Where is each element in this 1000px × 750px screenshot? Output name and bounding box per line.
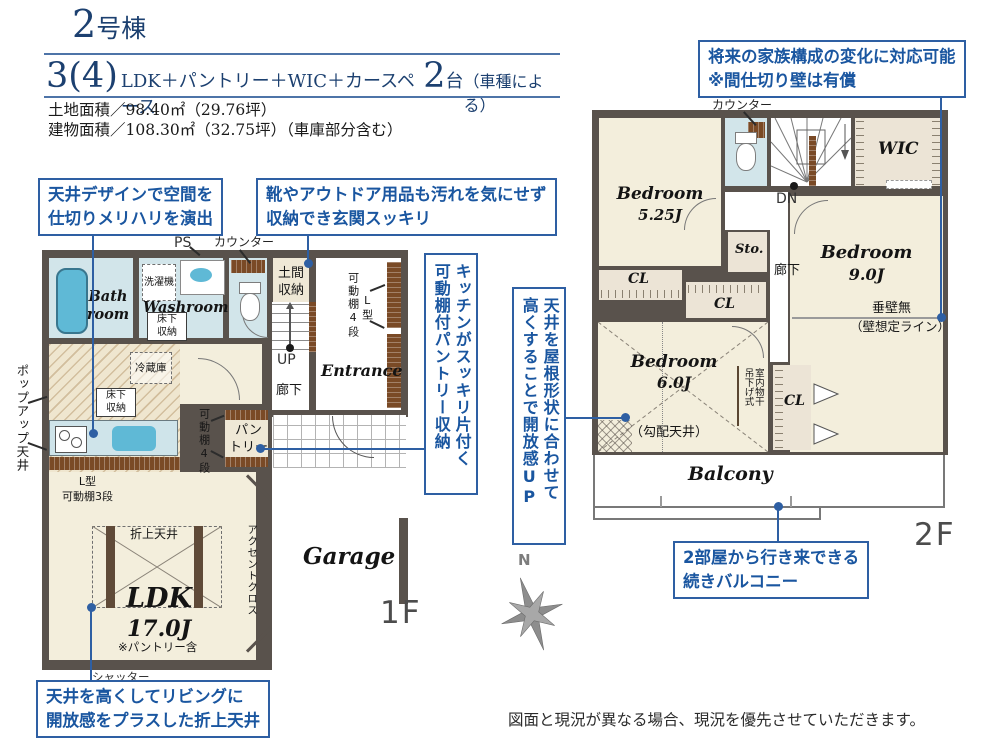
f2-closet2-hatch [688,285,764,293]
f1-doma-label-2: 収納 [278,283,304,298]
f1-pantry-label-1: パン [235,423,262,438]
f2-balcony-extension [593,508,821,520]
f1-entrance-ltype-label: L型 [360,294,373,322]
f2-drying-pole-label: 室内物干 吊下げ式 [742,368,763,430]
compass-rose-icon [494,562,570,658]
f1-bathroom-label-1: Bath [89,288,128,305]
car-unit: 台 [446,67,464,93]
callout-future-line2: ※間仕切り壁は有償 [708,71,856,90]
f1-underfloor-washroom-1: 床下 [157,314,177,325]
f1-washer-label: 洗濯機 [144,277,174,289]
connector-dot-bed6 [621,413,630,422]
f2-bedroom9-label: Bedroom 9.0J [790,242,943,285]
callout-oriage-line2: 開放感をプラスした折上天井 [46,711,260,730]
f2-tarekabe-note: （壁想定ライン） [850,320,950,334]
f2-closet3-hatch [775,367,783,448]
f2-toilet-bowl [736,143,756,171]
f1-entrance-shelf-label: 可動棚4段 [346,272,359,336]
callout-balcony-line2: 続きバルコニー [683,572,798,591]
callout-genkan-line2: 収納でき玄関スッキリ [266,209,431,228]
f2-drying-pole-line [737,366,739,426]
f1-counter-shelf [49,457,180,470]
connector-dot-balcony [774,502,783,511]
callout-ceiling-design-line2: 仕切りメリハリを演出 [48,209,213,228]
callout-balcony-line1: 2部屋から行き来できる [683,548,859,567]
f2-dn-label: DN [776,191,797,207]
callout-pantry: キッチンがスッキリ片付く 可動棚付パントリー収納 [424,253,478,495]
plan-rooms-number: 3(4) [46,56,118,96]
f2-balcony-divider-1 [660,496,662,507]
f1-stair-rail [309,302,316,352]
connector-pantry [261,448,424,450]
f2-wic-opening [886,180,932,189]
f1-toilet-bowl [240,293,260,321]
connector-ceiling-design [92,230,94,432]
f2-closet2-label: CL [714,297,735,312]
callout-slope-line2: 高くすることで開放感UP [520,297,539,507]
f2-drying-pole-label-2: 吊下げ式 [742,368,753,406]
connector-balcony [777,508,779,541]
callout-future-family: 将来の家族構成の変化に対応可能 ※間仕切り壁は有償 [698,40,966,98]
f2-floor-label: 2F [914,518,956,554]
f2-balcony-divider-2 [790,496,792,507]
f1-doma-label: 土間 収納 [278,266,304,300]
f2-dn-dot [790,182,798,190]
f1-garage-wall-bar [399,518,408,604]
car-count: 2 [423,56,445,96]
f1-up-dot [286,344,294,352]
f1-stairs-up-arrow [289,308,291,346]
callout-ceiling-design: 天井デザインで空間を 仕切りメリハリを演出 [38,178,223,236]
callout-slope-ceiling: 天井を屋根形状に合わせて 高くすることで開放感UP [512,287,566,545]
f1-pantry-shelf-top [225,410,268,420]
f2-closet1-hatch [601,290,680,298]
callout-pantry-line2: 可動棚付パントリー収納 [432,263,451,450]
f1-stairs-up-arrowhead [286,302,294,309]
f1-ldk-label: LDK 17.0J [84,582,234,643]
f1-oriage-label: 折上天井 [128,528,180,542]
connector-dot-pantry [256,444,265,453]
f2-bedroom525-size: 5.25J [638,206,682,224]
callout-future-line1: 将来の家族構成の変化に対応可能 [708,47,956,66]
building-area: 建物面積／108.30㎡（32.75坪）（車庫部分含む） [48,122,402,140]
f1-ps-label: PS [174,235,191,251]
f2-closet3-fold-doors [812,380,844,452]
callout-genkan-line1: 靴やアウトドア用品も汚れを気にせず [266,185,547,204]
f1-up-label: UP [277,352,296,368]
f1-underfloor-washroom-2: 収納 [157,327,177,338]
f2-closet3-label: CL [784,394,805,409]
f1-garage-label: Garage [303,544,395,569]
header-rule-top [44,53,560,55]
f1-ldk-size: 17.0J [127,616,191,642]
f2-stair-rail [809,136,816,186]
f2-bedroom525-label: Bedroom 5.25J [599,184,721,225]
callout-genkan-storage: 靴やアウトドア用品も汚れを気にせず 収納でき玄関スッキリ [256,178,557,236]
building-number: 2 [72,2,96,46]
f1-kitchen-sink [112,426,156,451]
callout-balcony: 2部屋から行き来できる 続きバルコニー [673,541,869,599]
connector-future [940,92,942,318]
f2-wic-label: WIC [878,140,919,159]
f1-ldk-name: LDK [126,583,192,614]
f1-underfloor-kitchen-1: 床下 [106,390,126,401]
f1-underfloor-kitchen: 床下 収納 [96,388,136,417]
callout-oriage-ceiling: 天井を高くしてリビングに 開放感をプラスした折上天井 [36,680,270,738]
f1-stove-burner-2 [71,437,82,448]
callout-ceiling-design-line1: 天井デザインで空間を [48,185,213,204]
connector-slope [562,417,626,419]
f1-lshelf-label-1: L型 [79,475,96,488]
f2-bedroom6-crosshatch [598,420,632,452]
f1-hall-label: 廊下 [276,384,302,399]
f1-entrance-shelf-upper [387,262,401,328]
f1-vanity-bowl [190,268,212,282]
f2-closet1-label: CL [628,272,649,287]
f1-lshelf-label-2: 可動棚3段 [62,490,113,503]
f2-balcony-label: Balcony [688,464,773,485]
f2-drying-pole-label-1: 室内物干 [753,368,764,406]
f2-wic-hanger-right [932,119,940,185]
f1-underfloor-washroom: 床下 収納 [147,312,187,341]
f1-fridge-label: 冷蔵庫 [135,362,167,374]
building-suffix: 号棟 [96,14,146,43]
connector-dot-doma [304,259,313,268]
f2-wic-hanger-left [856,119,864,185]
callout-pantry-line1: キッチンがスッキリ片付く [453,263,472,467]
header-rule-bottom [44,96,560,98]
f2-bedroom6-name: Bedroom [631,352,718,372]
building-title: 2号棟 [72,2,146,46]
f1-ldk-note: ※パントリー含 [118,641,197,654]
f1-accent-cloth-label: アクセントクロス [246,524,258,620]
f1-popup-ceiling-label: ポップアップ天井 [14,364,28,480]
f1-doma-label-1: 土間 [278,266,304,281]
f2-bedroom9-name: Bedroom [821,242,913,263]
f1-floor-label: 1F [380,596,422,632]
f2-bedroom6-size: 6.0J [657,373,691,392]
land-area: 土地面積／98.40㎡（29.76坪） [48,102,276,120]
callout-slope-line1: 天井を屋根形状に合わせて [541,297,560,501]
car-note: （車種による） [464,68,566,116]
f2-bedroom525-name: Bedroom [617,184,704,204]
f1-entrance-label: Entrance [321,362,403,380]
f1-pantry-shelf4-label: 可動棚4段 [197,408,210,466]
disclaimer-note: 図面と現況が異なる場合、現況を優先させていただきます。 [508,712,925,730]
connector-dot-ldk [87,603,96,612]
f2-tarekabe-label: 垂壁無 [872,302,911,317]
floorplan-page: 2号棟 3(4) LDK＋パントリー＋WIC＋カースペース 2 台 （車種による… [0,0,1000,750]
connector-dot-kitchen [89,429,98,438]
callout-oriage-line1: 天井を高くしてリビングに [46,687,244,706]
f2-storage-label: Sto. [735,243,763,257]
f1-stove-burner-1 [59,430,70,441]
connector-oriage [90,608,92,680]
f1-lshelf-label: L型 可動棚3段 [62,474,113,505]
connector-dot-bed9-wall [937,313,946,322]
f2-bedroom6-label: Bedroom 6.0J [600,352,748,393]
f1-underfloor-kitchen-2: 収納 [106,403,126,414]
f2-slope-note: （勾配天井） [630,426,708,441]
f1-pantry-shelf-bottom [225,457,268,467]
f2-bedroom9-size: 9.0J [849,265,884,284]
f1-counter-label: カウンター [214,236,274,250]
